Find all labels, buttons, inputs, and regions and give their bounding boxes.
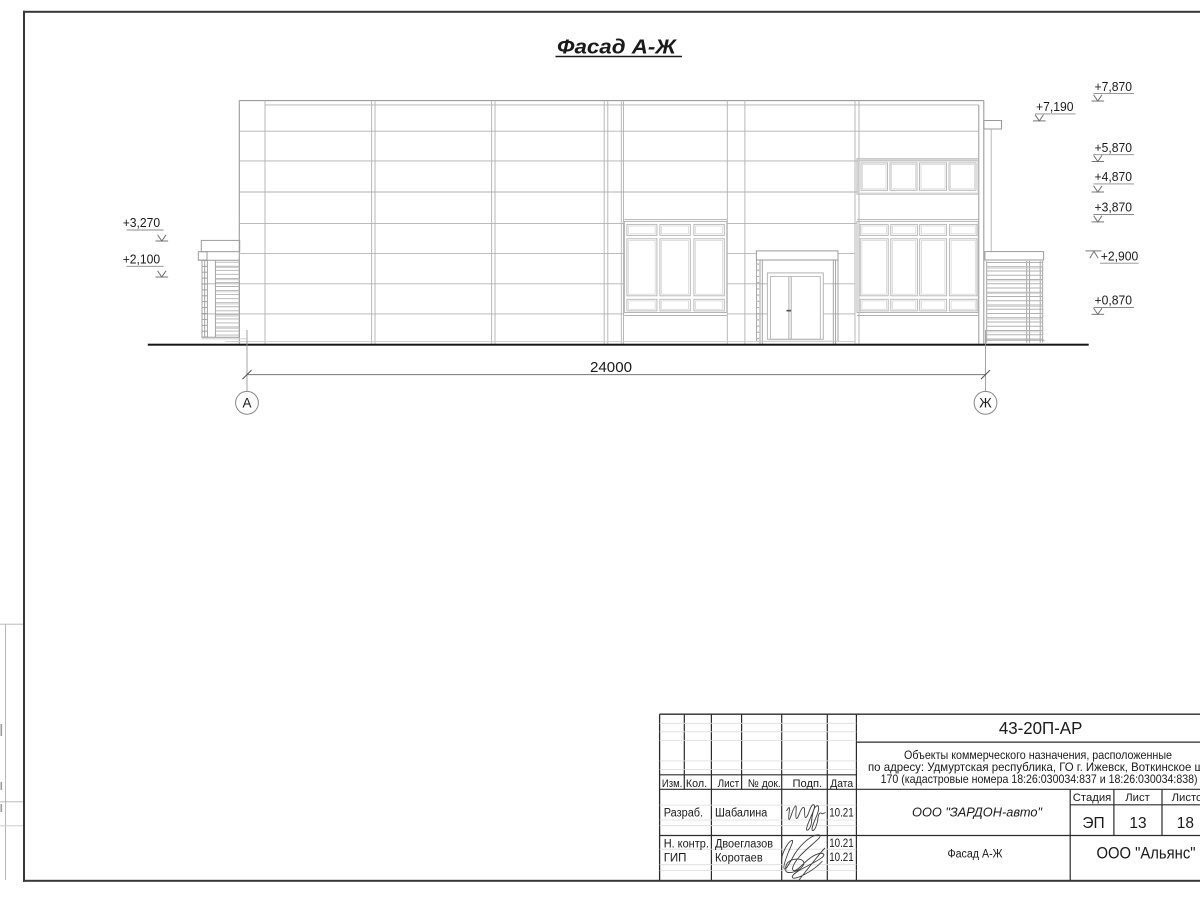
svg-text:43-20П-АР: 43-20П-АР: [999, 718, 1083, 738]
svg-text:10.21: 10.21: [829, 838, 854, 850]
svg-text:+2,100: +2,100: [123, 252, 161, 266]
svg-text:+7,190: +7,190: [1036, 100, 1074, 114]
svg-text:170 (кадастровые номера 18:26:: 170 (кадастровые номера 18:26:030034:837…: [881, 772, 1198, 786]
svg-text:Лист: Лист: [1125, 792, 1150, 804]
svg-text:Кол.: Кол.: [686, 778, 707, 790]
svg-text:+4,870: +4,870: [1095, 170, 1133, 184]
svg-text:13: 13: [1129, 815, 1146, 832]
svg-text:Листов: Листов: [1172, 792, 1200, 804]
svg-text:Двоеглазов: Двоеглазов: [715, 839, 773, 851]
svg-text:ГИП: ГИП: [664, 852, 687, 864]
svg-text:ЭП: ЭП: [1082, 815, 1104, 832]
svg-text:Дата: Дата: [830, 778, 854, 790]
svg-text:+5,870: +5,870: [1095, 141, 1133, 155]
svg-text:+0,870: +0,870: [1095, 294, 1133, 308]
svg-text:Шабалина: Шабалина: [715, 808, 768, 820]
svg-text:Коротаев: Коротаев: [715, 852, 763, 864]
svg-text:+2,900: +2,900: [1101, 250, 1139, 264]
svg-text:Разраб.: Разраб.: [664, 808, 703, 820]
svg-text:ООО "Альянс": ООО "Альянс": [1097, 845, 1196, 863]
svg-text:ООО "ЗАРДОН-авто": ООО "ЗАРДОН-авто": [912, 804, 1043, 819]
svg-text:+3,870: +3,870: [1095, 201, 1133, 215]
svg-text:Ж: Ж: [979, 396, 992, 411]
svg-text:+3,270: +3,270: [123, 216, 161, 230]
svg-text:Подп.: Подп.: [793, 778, 823, 790]
svg-text:Фасад А-Ж: Фасад А-Ж: [948, 848, 1003, 860]
svg-text:Лист: Лист: [718, 778, 740, 790]
svg-text:Стадия: Стадия: [1073, 792, 1112, 804]
svg-text:А: А: [242, 396, 251, 411]
svg-text:Н. контр.: Н. контр.: [664, 839, 709, 851]
svg-text:Фасад А-Ж: Фасад А-Ж: [557, 37, 678, 59]
svg-text:24000: 24000: [590, 359, 632, 376]
svg-text:18: 18: [1177, 815, 1194, 832]
svg-text:Изм.: Изм.: [662, 778, 682, 790]
svg-text:10.21: 10.21: [829, 852, 854, 864]
svg-text:№ док.: № док.: [748, 778, 781, 790]
svg-text:10.21: 10.21: [829, 808, 854, 820]
svg-text:+7,870: +7,870: [1095, 80, 1133, 94]
